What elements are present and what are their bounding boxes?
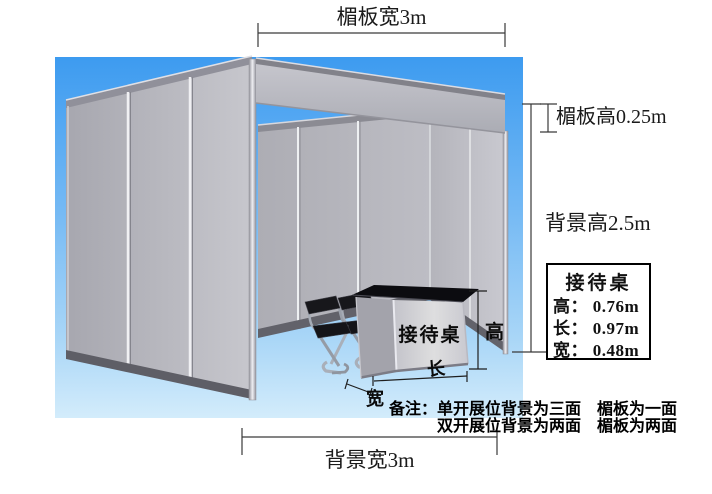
desk-height-arrow-label: 高: [485, 317, 504, 344]
note-line-2: 双开展位背景为两面 楣板为两面: [437, 412, 677, 436]
info-box-title: 接待桌: [548, 268, 649, 295]
top-width-dimension-label: 楣板宽3m: [258, 1, 505, 31]
background-height-dimension-label: 背景高2.5m: [545, 207, 651, 237]
info-row-length: 长： 0.97m: [553, 318, 649, 340]
desk-length-arrow-label: 长: [426, 354, 446, 381]
lintel-height-dimension-label: 楣板高0.25m: [556, 100, 667, 129]
left-wall: [66, 56, 256, 400]
booth-diagram: 楣板宽3m 楣板高0.25m 背景高2.5m 背景宽3m 接待桌 高 长 宽 接…: [0, 0, 712, 494]
info-row-height: 高： 0.76m: [553, 296, 649, 318]
desk-width-arrow-label: 宽: [366, 385, 384, 411]
background-width-dimension-label: 背景宽3m: [242, 444, 497, 474]
reception-desk-label: 接待桌: [392, 320, 468, 347]
info-row-width: 宽： 0.48m: [553, 340, 649, 362]
reception-desk-info-box: 接待桌 高： 0.76m 长： 0.97m 宽： 0.48m: [546, 263, 651, 360]
